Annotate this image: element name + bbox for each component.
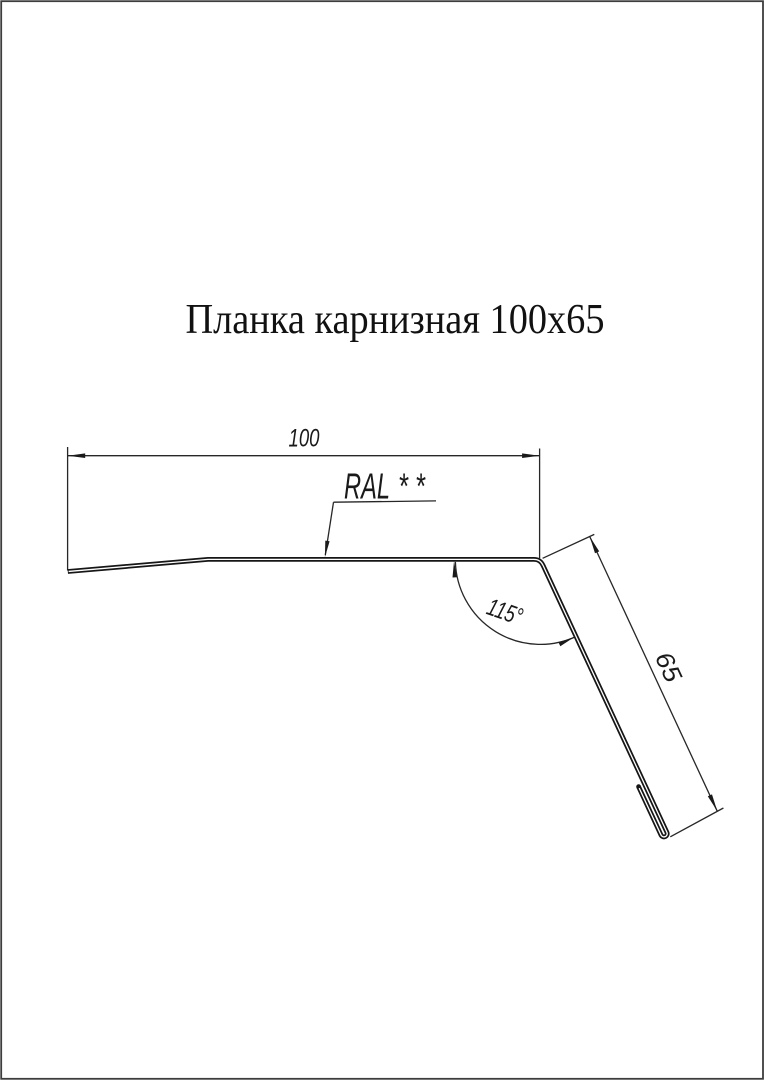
svg-text:100: 100 [289, 425, 320, 453]
svg-text:* *: * * [398, 465, 426, 506]
svg-text:Планка карнизная 100х65: Планка карнизная 100х65 [186, 297, 605, 343]
svg-text:RAL: RAL [344, 465, 390, 506]
